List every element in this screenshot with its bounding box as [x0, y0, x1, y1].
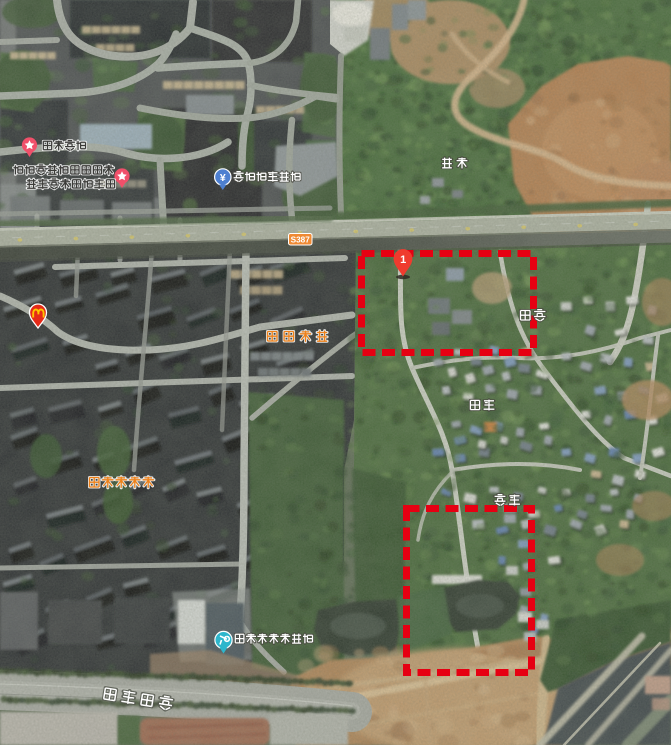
svg-text:¥: ¥ — [220, 172, 226, 184]
svg-text:1: 1 — [400, 254, 406, 266]
svg-text:S387: S387 — [291, 235, 311, 244]
